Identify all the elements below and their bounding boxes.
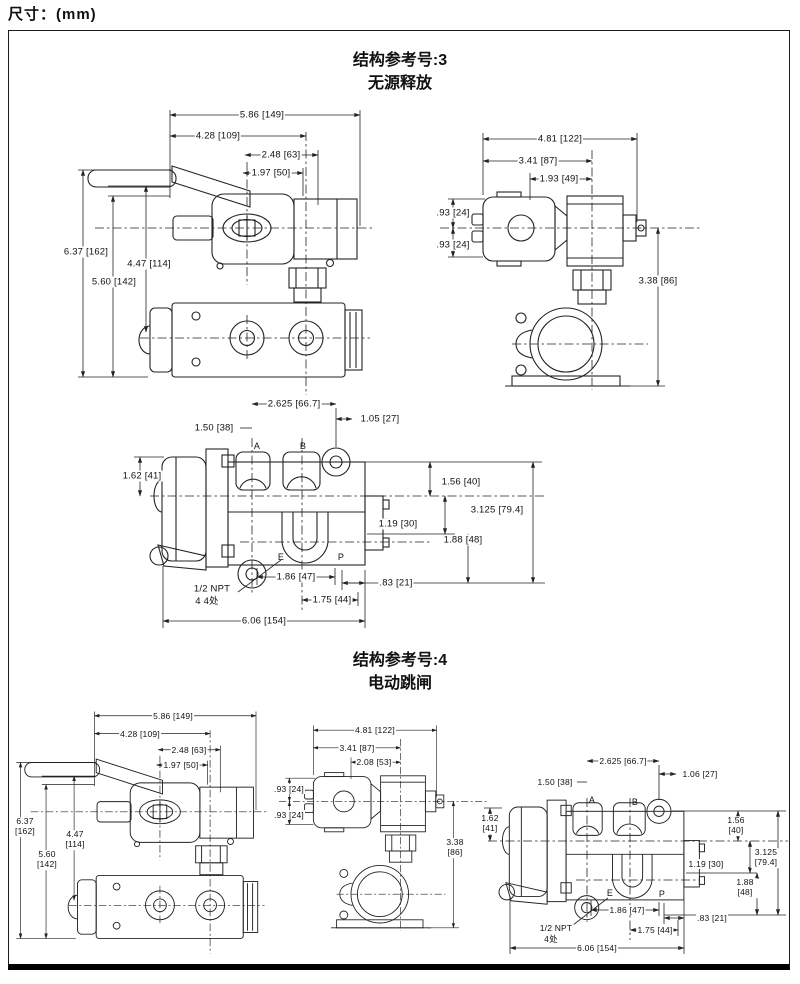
dim-label: 2.625 [66.7]: [267, 399, 322, 410]
dim-label: 5.60 [142]: [91, 277, 137, 288]
dim-label: 2.08 [53]: [356, 757, 393, 767]
port-label-e: E: [277, 552, 285, 562]
dim-label: 1.93 [49]: [539, 174, 580, 185]
dim-label: 3.125 [79.4]: [470, 505, 525, 516]
dim-label: 1.88 [48]: [443, 535, 484, 546]
port-label-a: A: [253, 441, 261, 451]
dim-label: .93 [24]: [273, 810, 305, 820]
dim-label: 3.38 [86]: [638, 276, 679, 287]
dim-label: 4.81 [122]: [537, 134, 583, 145]
dim-label: 1.56 [40]: [724, 816, 749, 836]
port-label-p: P: [658, 889, 666, 899]
dim-label: 1.05 [27]: [360, 414, 401, 425]
port-label-e: E: [606, 888, 614, 898]
dim-label: 6.37 [162]: [13, 817, 38, 837]
dim-label: 2.48 [63]: [171, 745, 208, 755]
port-label-a: A: [588, 795, 596, 805]
dim-label: .83 [21]: [696, 913, 728, 923]
dim-label: .83 [21]: [378, 578, 413, 589]
dim-label: 4.47 [114]: [126, 259, 172, 270]
dim-label: .93 [24]: [273, 784, 305, 794]
port-label-b: B: [299, 441, 307, 451]
dim-label: 5.86 [149]: [152, 711, 194, 721]
dim-label: 5.60 [142]: [35, 850, 60, 870]
dim-label: 1.97 [50]: [251, 168, 292, 179]
dim-label: 1.62 [41]: [122, 471, 163, 482]
dim-label: 1.19 [30]: [688, 859, 725, 869]
dim-label: .93 [24]: [435, 240, 470, 251]
npt-note: 4 4处: [194, 593, 220, 607]
dim-label: 3.41 [87]: [518, 156, 559, 167]
dim-label: 1.50 [38]: [537, 777, 574, 787]
dim-label: 2.48 [63]: [261, 150, 302, 161]
dim-label: 1.06 [27]: [682, 769, 719, 779]
dim-label: 4.81 [122]: [354, 725, 396, 735]
npt-note: 1/2 NPT: [539, 923, 574, 933]
dim-label: 1.62 [41]: [478, 814, 503, 834]
dim-label: 6.06 [154]: [576, 943, 618, 953]
dim-label: 3.38 [86]: [443, 838, 468, 858]
dim-label: 5.86 [149]: [239, 110, 285, 121]
dim-label: 2.625 [66.7]: [598, 756, 647, 766]
dim-label: 1.88 [48]: [733, 878, 758, 898]
dim-label: 6.06 [154]: [241, 616, 287, 627]
dim-label: 1.19 [30]: [378, 519, 419, 530]
dim-label: 1.56 [40]: [441, 477, 482, 488]
dim-label: 3.125 [79.4]: [751, 848, 782, 868]
dim-label: 1.75 [44]: [312, 595, 353, 606]
drawing-canvas: [0, 0, 800, 984]
dim-label: 4.28 [109]: [119, 729, 161, 739]
dim-label: 1.97 [50]: [163, 760, 200, 770]
dim-label: 4.28 [109]: [195, 131, 241, 142]
dim-label: 6.37 [162]: [63, 247, 109, 258]
dim-label: 1.50 [38]: [194, 423, 235, 434]
dim-label: 1.86 [47]: [609, 905, 646, 915]
dim-label: 1.86 [47]: [276, 572, 317, 583]
dim-label: 4.47 [114]: [63, 830, 88, 850]
port-label-p: P: [337, 552, 345, 562]
port-label-b: B: [631, 797, 639, 807]
dim-label: .93 [24]: [435, 208, 470, 219]
drawing-sheet: 尺寸：(mm) 结构参考号:3 无源释放 结构参考号:4 电动跳闸: [0, 0, 800, 984]
dim-label: 1.75 [44]: [637, 925, 674, 935]
npt-note: 4处: [543, 933, 559, 945]
dim-label: 3.41 [87]: [339, 743, 376, 753]
